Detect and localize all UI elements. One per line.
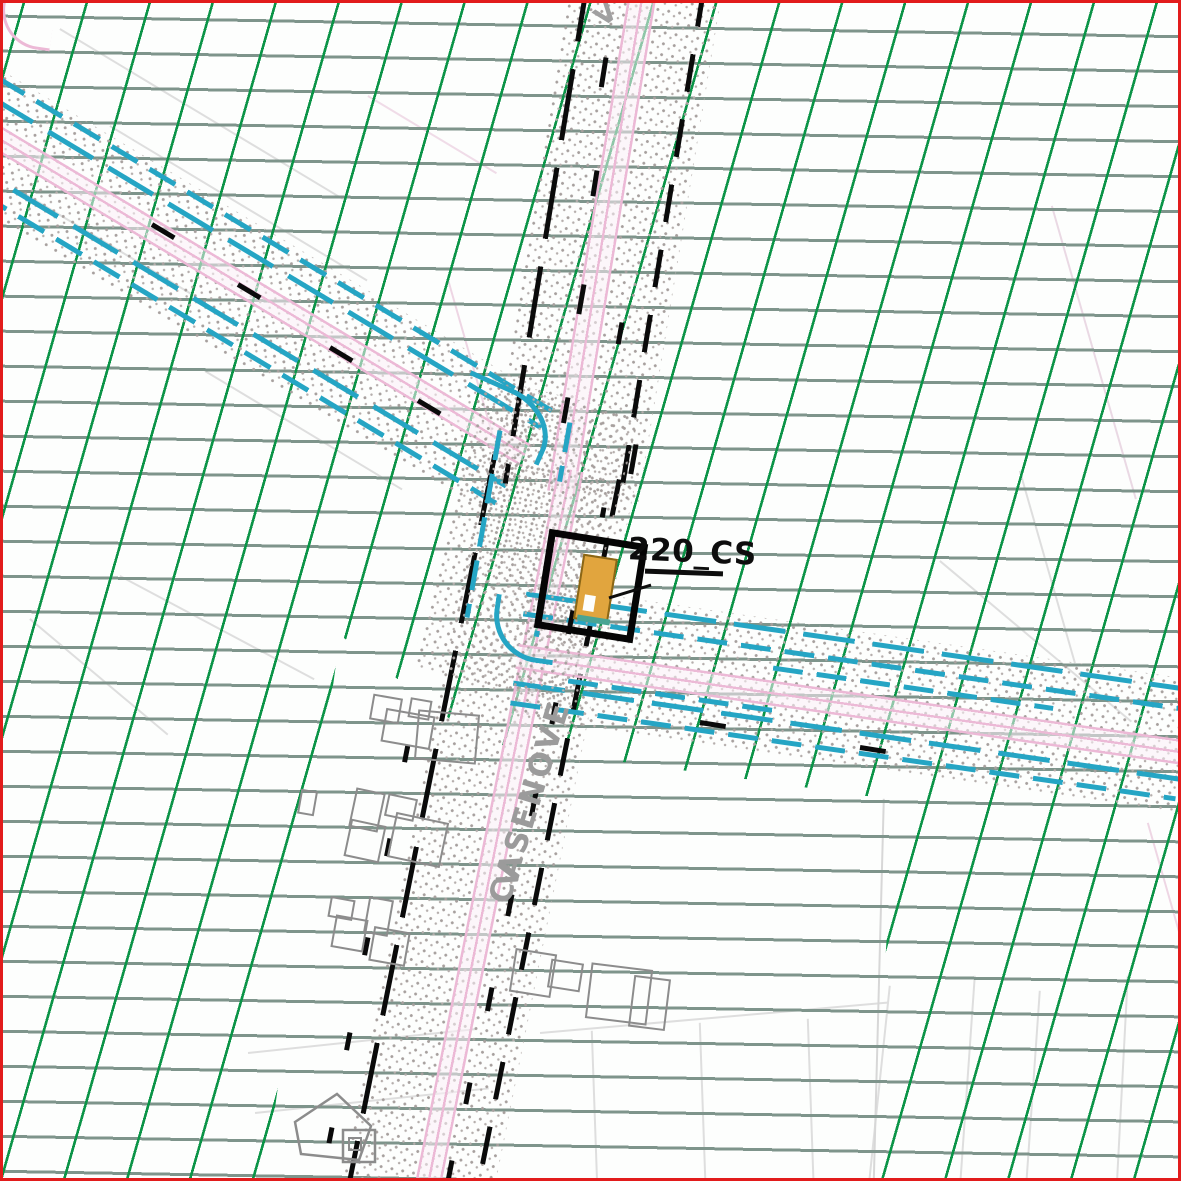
building-footprint bbox=[414, 709, 480, 764]
building-footprint bbox=[297, 789, 318, 817]
building-footprint bbox=[343, 819, 386, 864]
building-footprint-polygon bbox=[285, 1092, 405, 1181]
building-footprint bbox=[330, 914, 368, 952]
substation-symbol-notch bbox=[583, 594, 596, 612]
building-footprint bbox=[628, 975, 671, 1031]
building-footprint bbox=[387, 812, 449, 868]
map-canvas: CASENOVE V V 220_CS bbox=[0, 0, 1181, 1181]
marker-label-220cs: 220_CS bbox=[627, 531, 757, 573]
building-footprint bbox=[368, 926, 411, 967]
building-footprint bbox=[547, 959, 584, 993]
